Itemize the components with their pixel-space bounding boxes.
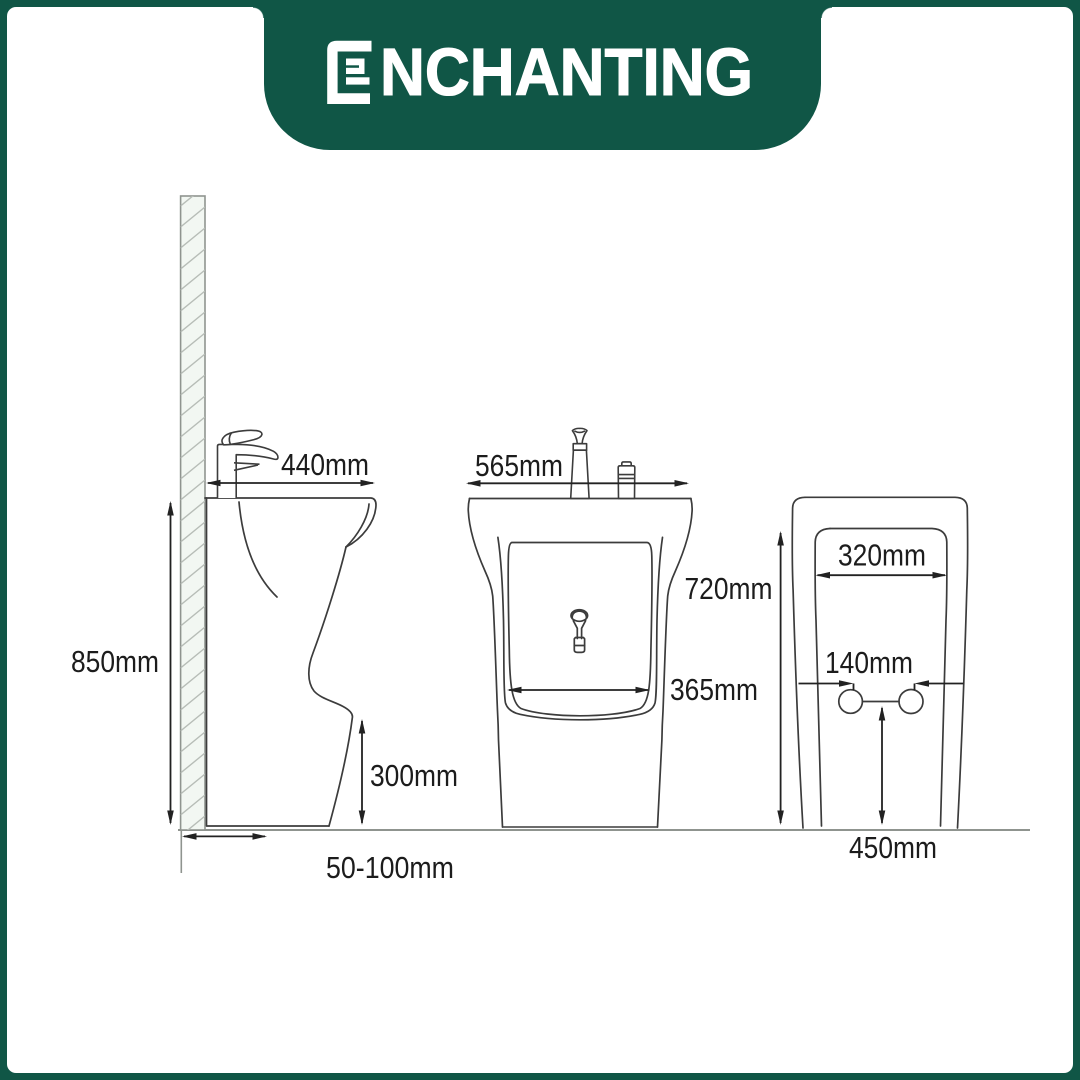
svg-text:850mm: 850mm (71, 644, 159, 679)
svg-text:565mm: 565mm (475, 448, 563, 483)
svg-text:440mm: 440mm (281, 447, 369, 482)
svg-text:300mm: 300mm (370, 758, 458, 793)
svg-text:320mm: 320mm (838, 538, 926, 573)
svg-text:140mm: 140mm (825, 645, 913, 680)
svg-text:720mm: 720mm (685, 571, 773, 606)
svg-text:450mm: 450mm (849, 830, 937, 865)
svg-text:365mm: 365mm (670, 672, 758, 707)
svg-text:50-100mm: 50-100mm (326, 850, 454, 885)
svg-text:NCHANTING: NCHANTING (380, 36, 753, 110)
